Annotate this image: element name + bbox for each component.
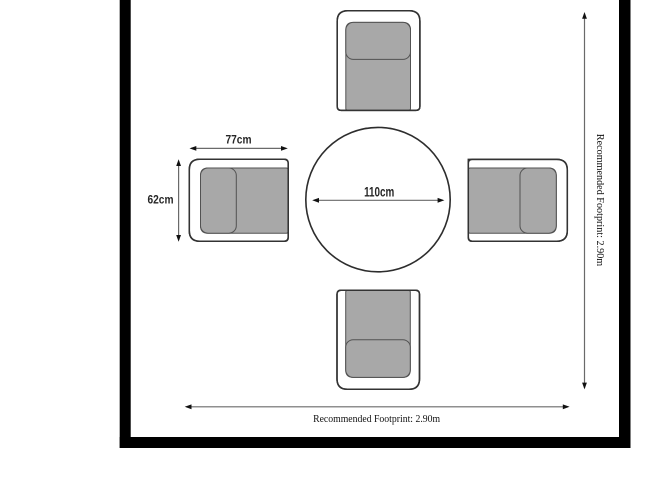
svg-text:Recommended Footprint: 2.90m: Recommended Footprint: 2.90m — [313, 413, 441, 425]
svg-text:Recommended Footprint: 2.90m: Recommended Footprint: 2.90m — [594, 134, 606, 267]
svg-text:77cm: 77cm — [226, 133, 252, 147]
svg-text:110cm: 110cm — [364, 184, 394, 199]
svg-text:62cm: 62cm — [148, 193, 174, 207]
